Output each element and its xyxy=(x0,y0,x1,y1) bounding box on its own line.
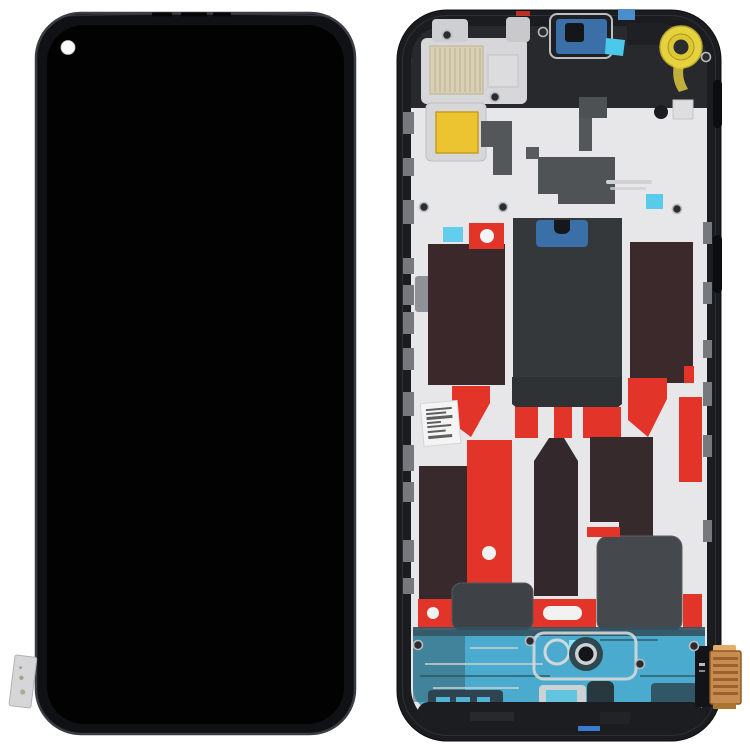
barcode-label xyxy=(420,400,461,446)
plate-square-window xyxy=(673,100,693,119)
flex-connector xyxy=(695,645,741,709)
cyan-sticker-film xyxy=(443,227,463,242)
lcd-screen xyxy=(47,25,344,724)
cyan-sticker-mid xyxy=(646,194,663,209)
graphite-film-left xyxy=(428,244,505,385)
bottom-frame-band xyxy=(417,702,703,731)
blue-bracket-center xyxy=(536,220,588,247)
silver-post xyxy=(506,17,530,42)
product-photo xyxy=(0,0,750,750)
earpiece-mesh xyxy=(430,46,483,94)
top-edge-notches xyxy=(152,13,231,17)
camera-ring-bottom xyxy=(569,637,603,671)
plate-hole xyxy=(654,105,668,119)
sensor-window-plate xyxy=(488,55,518,87)
graphite-film-right xyxy=(630,242,693,383)
red-sliver-right-col xyxy=(684,366,694,383)
front-camera-bracket xyxy=(550,14,612,58)
cyan-sticker-top xyxy=(605,38,625,56)
red-pull-tab-sticker xyxy=(469,223,504,249)
red-top-sliver xyxy=(516,11,530,16)
gold-contact-pad xyxy=(426,103,486,161)
flex-cable-tab xyxy=(9,655,37,708)
front-assembly xyxy=(9,13,355,735)
punch-hole-camera-cutout xyxy=(61,41,75,55)
bottom-chassis xyxy=(413,627,705,712)
blue-tab-top-edge xyxy=(618,9,635,20)
rear-frame-assembly xyxy=(397,9,741,741)
